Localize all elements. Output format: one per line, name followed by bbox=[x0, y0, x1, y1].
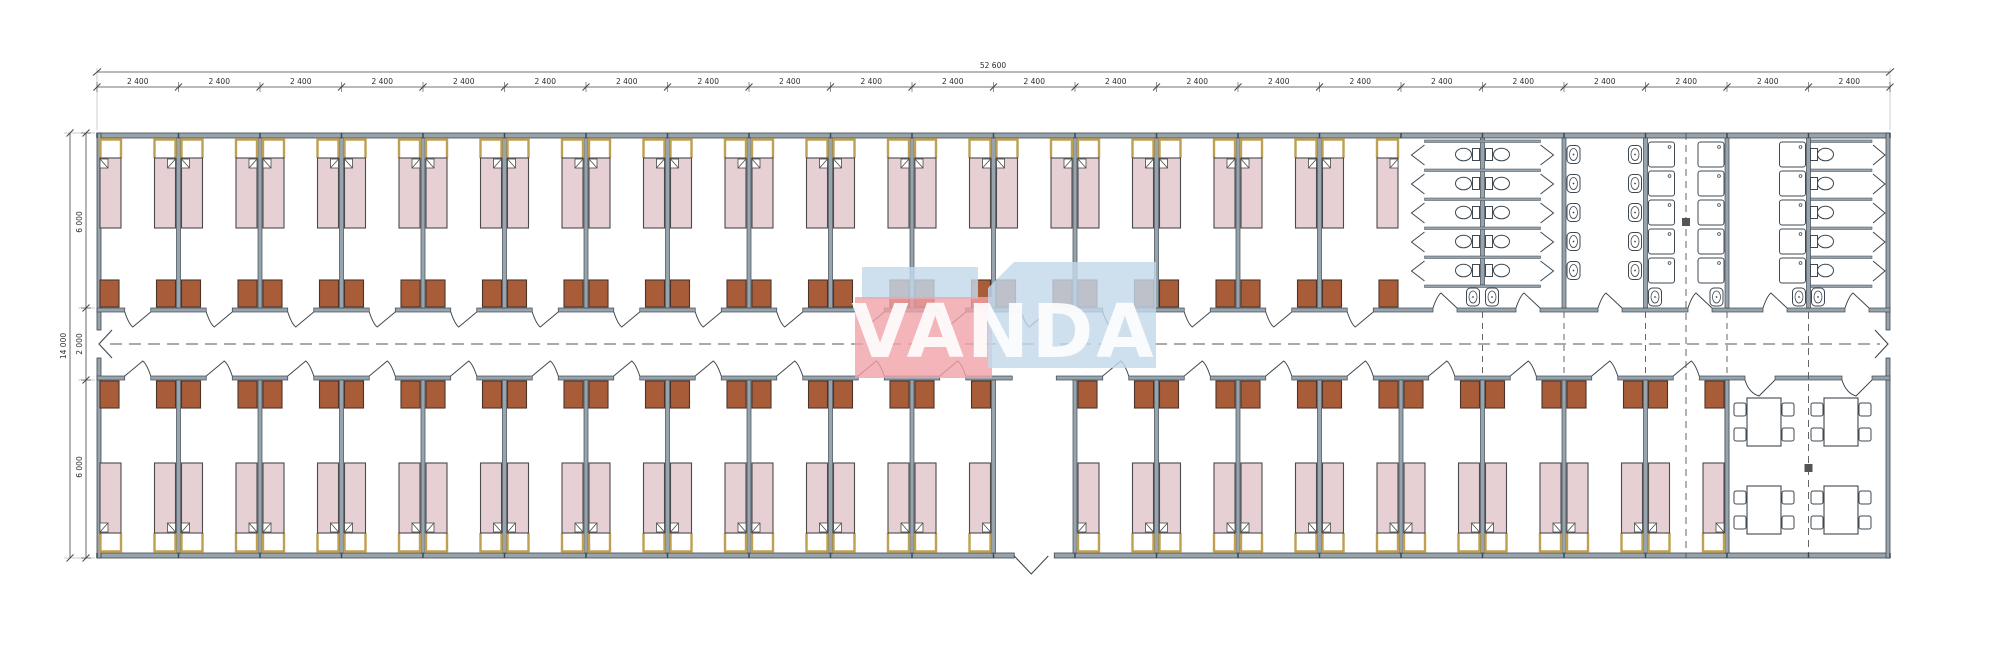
toilet-bowl bbox=[1456, 264, 1472, 277]
partition-wall-bottom bbox=[747, 380, 751, 553]
bed-symbol bbox=[1649, 463, 1670, 533]
wardrobe-symbol bbox=[238, 381, 257, 408]
corridor-wall-bottom bbox=[97, 376, 125, 380]
door-swing bbox=[1184, 312, 1210, 327]
corridor-wall-top bbox=[803, 308, 859, 312]
toilet-bowl bbox=[1494, 206, 1510, 219]
door-swing bbox=[369, 312, 395, 327]
chair-symbol bbox=[1782, 428, 1794, 441]
bed-symbol bbox=[970, 158, 991, 228]
partition-wall-bottom bbox=[584, 380, 588, 553]
wardrobe-symbol bbox=[157, 381, 176, 408]
corridor-wall-bottom bbox=[1536, 376, 1592, 380]
wall-joint-tick bbox=[178, 553, 180, 558]
partition-wall-bottom bbox=[666, 380, 670, 553]
bed-symbol bbox=[345, 158, 366, 228]
chair-symbol bbox=[1782, 516, 1794, 529]
bed-symbol bbox=[562, 463, 583, 533]
washroom-wall bbox=[1562, 138, 1566, 308]
door-swing bbox=[1266, 361, 1292, 376]
wall-joint-tick bbox=[1319, 133, 1321, 138]
wardrobe-symbol bbox=[646, 381, 665, 408]
bed-symbol bbox=[399, 463, 420, 533]
partition-wall-bottom bbox=[1399, 380, 1403, 553]
axis-node bbox=[1682, 218, 1690, 226]
toilet-bowl bbox=[1456, 235, 1472, 248]
chair-symbol bbox=[1734, 516, 1746, 529]
pillow bbox=[508, 533, 529, 552]
toilet-cistern bbox=[1811, 236, 1818, 248]
door-swing bbox=[614, 312, 640, 327]
door-swing bbox=[1510, 361, 1536, 376]
partition-wall-top bbox=[584, 138, 588, 308]
pillow bbox=[100, 140, 121, 159]
pillow bbox=[1323, 533, 1344, 552]
table-symbol bbox=[1747, 486, 1781, 534]
wall-joint-tick bbox=[1889, 133, 1891, 138]
toilet-bowl bbox=[1456, 177, 1472, 190]
bed-symbol bbox=[236, 158, 257, 228]
wardrobe-symbol bbox=[834, 381, 853, 408]
chair-symbol bbox=[1734, 491, 1746, 504]
stall-partition bbox=[1425, 169, 1541, 172]
corridor-wall-bottom bbox=[1056, 376, 1103, 380]
pillow bbox=[318, 140, 339, 159]
pillow bbox=[1622, 533, 1643, 552]
entrance-door-swing bbox=[1014, 556, 1048, 574]
corridor-wall-bottom bbox=[1872, 376, 1890, 380]
corridor-wall-bottom bbox=[1292, 376, 1348, 380]
washbasin-tap bbox=[1573, 154, 1575, 156]
pillow bbox=[1160, 140, 1181, 159]
toilet-bowl bbox=[1494, 235, 1510, 248]
stall-partition bbox=[1425, 256, 1541, 259]
pillow bbox=[671, 533, 692, 552]
door-swing bbox=[695, 361, 721, 376]
bed-symbol bbox=[888, 158, 909, 228]
washbasin-tap bbox=[1798, 296, 1800, 298]
bed-symbol bbox=[752, 463, 773, 533]
corridor-wall-top bbox=[1787, 308, 1845, 312]
bed-symbol bbox=[263, 158, 284, 228]
dim-module-label: 2 400 bbox=[1187, 77, 1209, 86]
pillow bbox=[888, 140, 909, 159]
wall-joint-tick bbox=[1726, 133, 1728, 138]
door-swing bbox=[614, 361, 640, 376]
bed-symbol bbox=[644, 463, 665, 533]
stall-door-swing bbox=[1873, 145, 1885, 165]
dim-module-label: 2 400 bbox=[1594, 77, 1616, 86]
chair-symbol bbox=[1859, 516, 1871, 529]
partition-wall-top bbox=[829, 138, 833, 308]
pillow bbox=[807, 533, 828, 552]
pillow bbox=[1214, 533, 1235, 552]
wardrobe-symbol bbox=[727, 381, 746, 408]
wall-joint-tick bbox=[585, 133, 587, 138]
bed-symbol bbox=[1214, 463, 1235, 533]
wardrobe-symbol bbox=[1160, 280, 1179, 307]
axis-node bbox=[1805, 464, 1813, 472]
wardrobe-symbol bbox=[345, 381, 364, 408]
wardrobe-symbol bbox=[426, 280, 445, 307]
door-swing bbox=[451, 312, 477, 327]
washbasin-tap bbox=[1573, 183, 1575, 185]
pillow bbox=[1296, 533, 1317, 552]
wardrobe-symbol bbox=[1135, 381, 1154, 408]
pillow bbox=[589, 533, 610, 552]
partition-wall-top bbox=[1236, 138, 1240, 308]
pillow bbox=[1241, 140, 1262, 159]
wall-joint-tick bbox=[748, 553, 750, 558]
dim-room-depth-top: 6 000 bbox=[75, 211, 84, 233]
pillow bbox=[644, 140, 665, 159]
wardrobe-symbol bbox=[483, 381, 502, 408]
pillow bbox=[1703, 533, 1724, 552]
chair-symbol bbox=[1734, 428, 1746, 441]
door-swing bbox=[288, 312, 314, 327]
wall-joint-tick bbox=[422, 133, 424, 138]
bed-symbol bbox=[671, 158, 692, 228]
corridor-wall-bottom bbox=[640, 376, 696, 380]
door-swing bbox=[206, 312, 232, 327]
washbasin-tap bbox=[1573, 270, 1575, 272]
blueprint-canvas: 2 4002 4002 4002 4002 4002 4002 4002 400… bbox=[0, 0, 2000, 654]
partition-wall-bottom bbox=[1481, 380, 1485, 553]
washbasin-tap bbox=[1573, 212, 1575, 214]
dim-module-label: 2 400 bbox=[1676, 77, 1698, 86]
wall-joint-tick bbox=[1237, 553, 1239, 558]
wall-joint-tick bbox=[259, 133, 261, 138]
pillow bbox=[481, 140, 502, 159]
bed-symbol bbox=[1377, 158, 1398, 228]
dim-module-label: 2 400 bbox=[942, 77, 964, 86]
corridor-wall-bottom bbox=[151, 376, 207, 380]
wall-joint-tick bbox=[1156, 133, 1158, 138]
corridor-wall-top bbox=[558, 308, 614, 312]
pillow bbox=[725, 533, 746, 552]
washbasin-tap bbox=[1573, 241, 1575, 243]
bed-symbol bbox=[752, 158, 773, 228]
partition-wall-bottom bbox=[1562, 380, 1566, 553]
corridor-wall-bottom bbox=[721, 376, 777, 380]
partition-wall-bottom bbox=[258, 380, 262, 553]
washbasin-tap bbox=[1634, 241, 1636, 243]
chair-symbol bbox=[1811, 403, 1823, 416]
stall-partition bbox=[1425, 227, 1541, 230]
door-swing bbox=[125, 312, 151, 327]
dim-module-label: 2 400 bbox=[535, 77, 557, 86]
toilet-bowl bbox=[1494, 264, 1510, 277]
wardrobe-symbol bbox=[182, 381, 201, 408]
washbasin-tap bbox=[1716, 296, 1718, 298]
wardrobe-symbol bbox=[890, 381, 909, 408]
partition-wall-top bbox=[666, 138, 670, 308]
pillow bbox=[671, 140, 692, 159]
wardrobe-symbol bbox=[1542, 381, 1561, 408]
wardrobe-symbol bbox=[1567, 381, 1586, 408]
stall-door-swing bbox=[1412, 174, 1425, 194]
partition-wall-bottom bbox=[177, 380, 181, 553]
bed-symbol bbox=[481, 158, 502, 228]
bed-symbol bbox=[481, 463, 502, 533]
stall-door-swing bbox=[1873, 174, 1885, 194]
bed-symbol bbox=[182, 158, 203, 228]
bed-symbol bbox=[1078, 463, 1099, 533]
corridor-wall-top bbox=[97, 308, 125, 312]
bed-symbol bbox=[1459, 463, 1480, 533]
wardrobe-symbol bbox=[1323, 280, 1342, 307]
bed-symbol bbox=[345, 463, 366, 533]
bed-symbol bbox=[1703, 463, 1724, 533]
wall-joint-tick bbox=[1400, 553, 1402, 558]
wall-joint-tick bbox=[1319, 553, 1321, 558]
bed-symbol bbox=[834, 463, 855, 533]
pillow bbox=[182, 140, 203, 159]
pillow bbox=[834, 140, 855, 159]
bed-symbol bbox=[508, 158, 529, 228]
washroom-wall bbox=[1807, 138, 1811, 308]
pillow bbox=[236, 140, 257, 159]
toilet-cistern bbox=[1486, 178, 1493, 190]
wall-joint-tick bbox=[1074, 553, 1076, 558]
wall-joint-tick bbox=[1237, 133, 1239, 138]
bed-symbol bbox=[1214, 158, 1235, 228]
stall-partition bbox=[1811, 198, 1873, 201]
pillow bbox=[970, 533, 991, 552]
partition-wall-bottom bbox=[503, 380, 507, 553]
bed-symbol bbox=[1241, 463, 1262, 533]
door-swing bbox=[1745, 380, 1775, 396]
corridor-wall-bottom bbox=[1129, 376, 1185, 380]
door-swing bbox=[288, 361, 314, 376]
pillow bbox=[318, 533, 339, 552]
wardrobe-symbol bbox=[1486, 381, 1505, 408]
bed-symbol bbox=[1160, 158, 1181, 228]
washroom-wall bbox=[1644, 138, 1648, 308]
bed-symbol bbox=[1323, 463, 1344, 533]
toilet-bowl bbox=[1494, 177, 1510, 190]
stall-partition bbox=[1811, 169, 1873, 172]
wardrobe-symbol bbox=[1624, 381, 1643, 408]
bed-symbol bbox=[155, 463, 176, 533]
door-swing bbox=[1429, 361, 1455, 376]
wall-joint-tick bbox=[1645, 553, 1647, 558]
stall-door-swing bbox=[1412, 145, 1425, 165]
wall-joint-tick bbox=[341, 553, 343, 558]
wall-joint-tick bbox=[341, 133, 343, 138]
outer-wall-bottom bbox=[97, 553, 1014, 558]
wall-joint-tick bbox=[667, 133, 669, 138]
door-swing bbox=[1184, 361, 1210, 376]
pillow bbox=[182, 533, 203, 552]
stall-door-swing bbox=[1873, 261, 1885, 281]
stall-partition bbox=[1811, 285, 1873, 288]
chair-symbol bbox=[1859, 428, 1871, 441]
corridor-wall-bottom bbox=[1618, 376, 1674, 380]
table-symbol bbox=[1747, 398, 1781, 446]
outer-wall-bottom bbox=[1054, 553, 1890, 558]
wardrobe-symbol bbox=[1241, 381, 1260, 408]
pillow bbox=[1160, 533, 1181, 552]
stall-partition bbox=[1811, 140, 1873, 143]
corridor-wall-top bbox=[1373, 308, 1433, 312]
washbasin-tap bbox=[1654, 296, 1656, 298]
door-swing bbox=[1598, 293, 1622, 308]
stall-partition bbox=[1811, 227, 1873, 230]
pillow bbox=[263, 140, 284, 159]
bed-symbol bbox=[1404, 463, 1425, 533]
toilet-bowl bbox=[1818, 177, 1834, 190]
stall-door-swing bbox=[1873, 232, 1885, 252]
wardrobe-symbol bbox=[972, 381, 991, 408]
bed-symbol bbox=[236, 463, 257, 533]
corridor-wall-top bbox=[1292, 308, 1348, 312]
pillow bbox=[725, 140, 746, 159]
toilet-cistern bbox=[1473, 236, 1480, 248]
washbasin-tap bbox=[1634, 154, 1636, 156]
washbasin-tap bbox=[1634, 212, 1636, 214]
bed-symbol bbox=[155, 158, 176, 228]
wardrobe-symbol bbox=[589, 280, 608, 307]
door-swing bbox=[1688, 293, 1712, 308]
pillow bbox=[1214, 140, 1235, 159]
toilet-cistern bbox=[1811, 265, 1818, 277]
chair-symbol bbox=[1811, 428, 1823, 441]
bed-symbol bbox=[318, 158, 339, 228]
bed-symbol bbox=[1540, 463, 1561, 533]
stall-door-swing bbox=[1541, 145, 1554, 165]
wall-joint-tick bbox=[1645, 133, 1647, 138]
pillow bbox=[155, 140, 176, 159]
door-swing bbox=[1592, 361, 1618, 376]
dim-module-label: 2 400 bbox=[616, 77, 638, 86]
wall-joint-tick bbox=[911, 133, 913, 138]
stall-partition bbox=[1425, 140, 1541, 143]
bed-symbol bbox=[1078, 158, 1099, 228]
door-swing bbox=[695, 312, 721, 327]
corridor-wall-bottom bbox=[1699, 376, 1745, 380]
bed-symbol bbox=[1323, 158, 1344, 228]
bed-symbol bbox=[589, 158, 610, 228]
wall-joint-tick bbox=[1074, 133, 1076, 138]
wall-joint-tick bbox=[830, 133, 832, 138]
pillow bbox=[481, 533, 502, 552]
toilet-bowl bbox=[1818, 148, 1834, 161]
wall-joint-tick bbox=[1482, 553, 1484, 558]
wardrobe-symbol bbox=[646, 280, 665, 307]
pillow bbox=[1323, 140, 1344, 159]
bed-symbol bbox=[263, 463, 284, 533]
dim-module-label: 2 400 bbox=[1105, 77, 1127, 86]
stall-partition bbox=[1425, 198, 1541, 201]
toilet-cistern bbox=[1811, 149, 1818, 161]
wardrobe-symbol bbox=[1323, 381, 1342, 408]
toilet-cistern bbox=[1473, 149, 1480, 161]
wardrobe-symbol bbox=[809, 280, 828, 307]
partition-wall-top bbox=[747, 138, 751, 308]
bed-symbol bbox=[1133, 158, 1154, 228]
wardrobe-symbol bbox=[727, 280, 746, 307]
bed-symbol bbox=[1567, 463, 1588, 533]
corridor-wall-top bbox=[721, 308, 777, 312]
toilet-bowl bbox=[1818, 206, 1834, 219]
dim-module-label: 2 400 bbox=[779, 77, 801, 86]
pillow bbox=[426, 533, 447, 552]
bed-symbol bbox=[426, 158, 447, 228]
corridor-wall-top bbox=[477, 308, 533, 312]
pillow bbox=[1133, 533, 1154, 552]
wall-joint-tick bbox=[585, 553, 587, 558]
pillow bbox=[1459, 533, 1480, 552]
pillow bbox=[1486, 533, 1507, 552]
pillow bbox=[345, 533, 366, 552]
outer-wall-side bbox=[1886, 358, 1890, 558]
stall-door-swing bbox=[1412, 203, 1425, 223]
partition-wall-top bbox=[340, 138, 344, 308]
wardrobe-symbol bbox=[401, 381, 420, 408]
bed-symbol bbox=[318, 463, 339, 533]
pillow bbox=[807, 140, 828, 159]
pillow bbox=[1241, 533, 1262, 552]
pillow bbox=[426, 140, 447, 159]
dim-module-label: 2 400 bbox=[1431, 77, 1453, 86]
wardrobe-symbol bbox=[401, 280, 420, 307]
toilet-cistern bbox=[1486, 207, 1493, 219]
toilet-cistern bbox=[1486, 265, 1493, 277]
bed-symbol bbox=[725, 158, 746, 228]
stall-door-swing bbox=[1541, 174, 1554, 194]
table-symbol bbox=[1824, 398, 1858, 446]
wall-joint-tick bbox=[748, 133, 750, 138]
bed-symbol bbox=[100, 463, 121, 533]
wall-joint-tick bbox=[1400, 133, 1402, 138]
partition-wall-bottom bbox=[1644, 380, 1648, 553]
pillow bbox=[399, 533, 420, 552]
wall-joint-tick bbox=[259, 553, 261, 558]
wardrobe-symbol bbox=[915, 381, 934, 408]
pillow bbox=[1649, 533, 1670, 552]
wardrobe-symbol bbox=[483, 280, 502, 307]
bed-symbol bbox=[1133, 463, 1154, 533]
wardrobe-symbol bbox=[752, 280, 771, 307]
pillow bbox=[236, 533, 257, 552]
door-swing bbox=[532, 361, 558, 376]
pillow bbox=[1567, 533, 1588, 552]
bed-symbol bbox=[1377, 463, 1398, 533]
corridor-wall-bottom bbox=[314, 376, 370, 380]
washroom-wall bbox=[1725, 138, 1729, 308]
wall-joint-tick bbox=[1889, 553, 1891, 558]
dim-module-label: 2 400 bbox=[698, 77, 720, 86]
wall-joint-tick bbox=[667, 553, 669, 558]
dim-total-width: 52 600 bbox=[980, 61, 1006, 70]
pillow bbox=[1377, 533, 1398, 552]
wall-joint-tick bbox=[96, 133, 98, 138]
toilet-cistern bbox=[1473, 178, 1480, 190]
chair-symbol bbox=[1734, 403, 1746, 416]
outer-wall-side bbox=[1886, 133, 1890, 330]
bed-symbol bbox=[399, 158, 420, 228]
stall-door-swing bbox=[1541, 232, 1554, 252]
table-symbol bbox=[1824, 486, 1858, 534]
dim-module-label: 2 400 bbox=[1513, 77, 1535, 86]
corridor-wall-top bbox=[1210, 308, 1266, 312]
door-swing bbox=[777, 361, 803, 376]
wall-joint-tick bbox=[993, 133, 995, 138]
wall-joint-tick bbox=[911, 553, 913, 558]
pillow bbox=[970, 140, 991, 159]
wardrobe-symbol bbox=[671, 280, 690, 307]
